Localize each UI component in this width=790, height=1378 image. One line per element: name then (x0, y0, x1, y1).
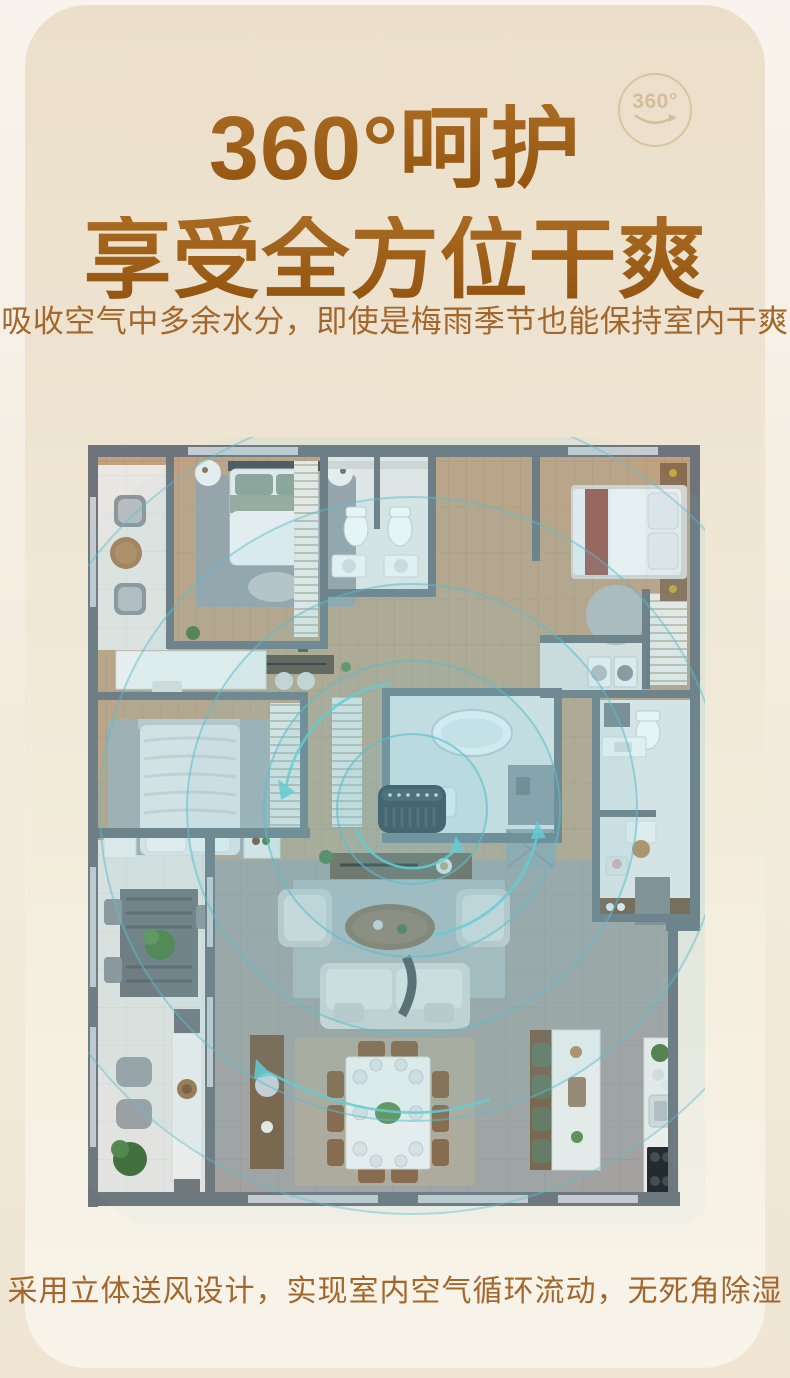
title-line-1: 360°呵护 (0, 104, 790, 194)
title-line-2: 享受全方位干爽 (0, 216, 790, 304)
ripple-circles (88, 437, 705, 1225)
subtitle-text: 吸收空气中多余水分，即使是梅雨季节也能保持室内干爽 (0, 296, 790, 341)
page-title: 360°呵护 享受全方位干爽 (0, 104, 790, 304)
caption-text: 采用立体送风设计，实现室内空气循环流动，无死角除湿 (0, 1266, 790, 1310)
floorplan-graphic (88, 437, 705, 1225)
